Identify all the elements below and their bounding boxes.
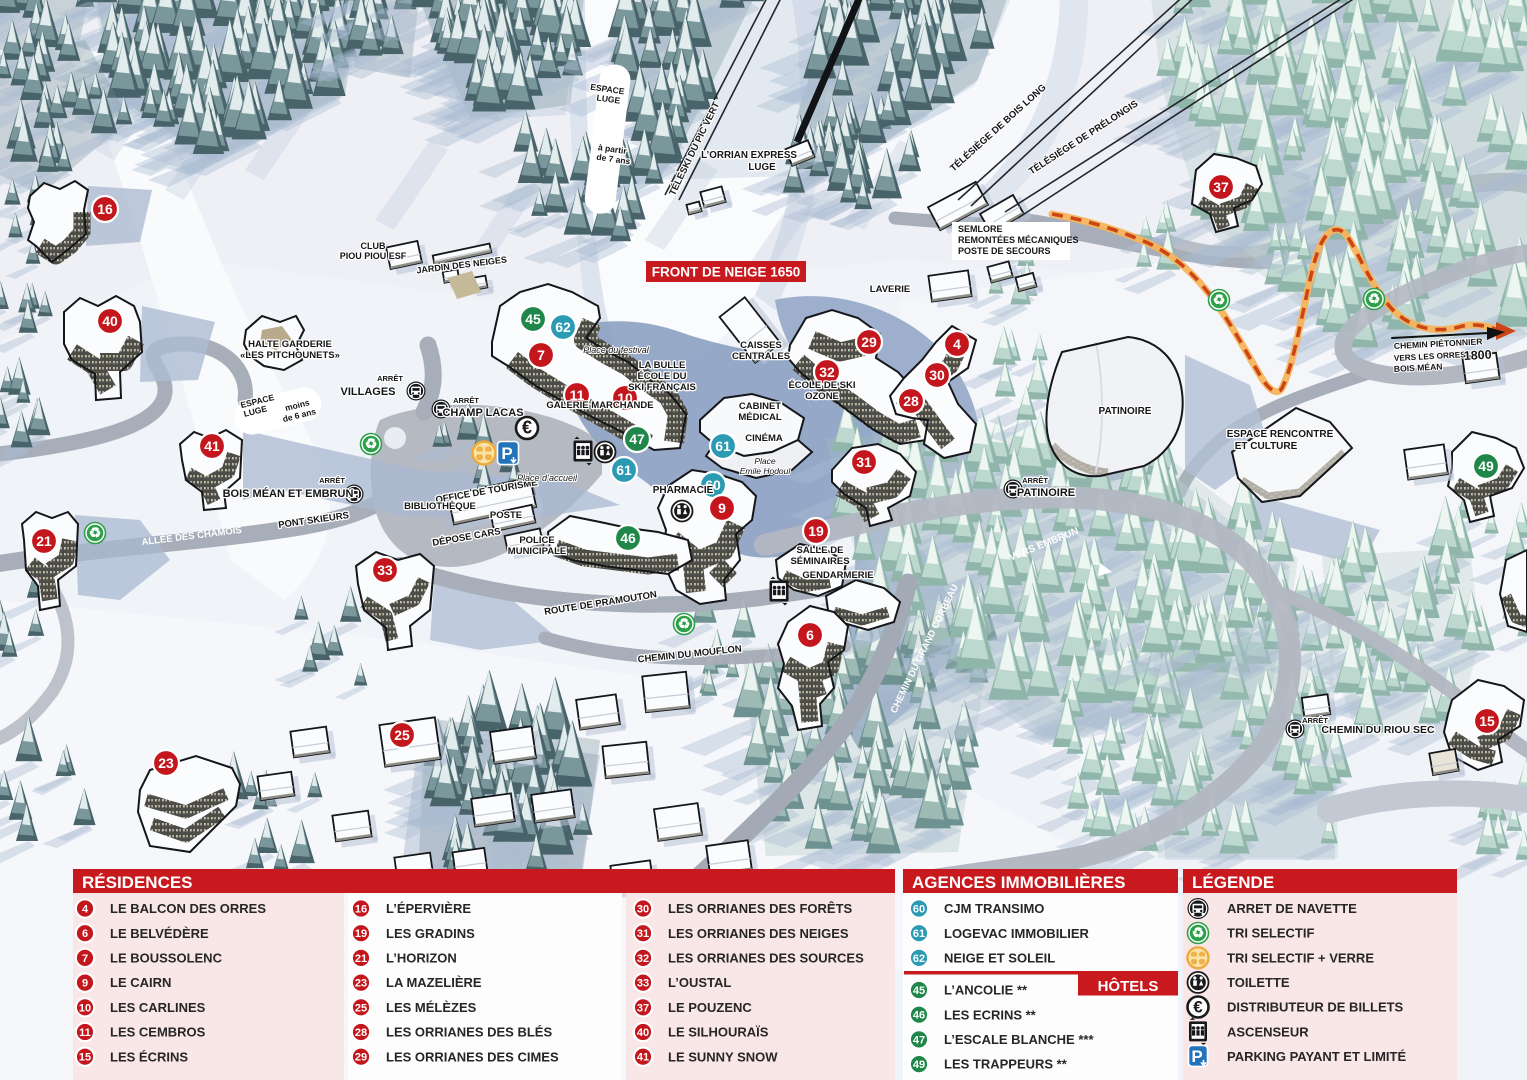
svg-text:POSTE DE SECOURS: POSTE DE SECOURS [958, 246, 1051, 256]
svg-text:9: 9 [718, 500, 726, 516]
svg-text:L’ANCOLIE **: L’ANCOLIE ** [944, 983, 1028, 998]
svg-text:MUNICIPALE: MUNICIPALE [508, 546, 566, 557]
svg-text:19: 19 [355, 928, 367, 940]
svg-text:LES CARLINES: LES CARLINES [110, 1000, 206, 1015]
svg-text:Place: Place [754, 456, 776, 466]
svg-text:30: 30 [637, 904, 649, 916]
svg-text:62: 62 [555, 319, 571, 335]
svg-text:ESPACE RENCONTRE: ESPACE RENCONTRE [1227, 429, 1334, 440]
svg-text:23: 23 [355, 978, 367, 990]
svg-text:«LES PITCHOUNETS»: «LES PITCHOUNETS» [240, 350, 340, 361]
svg-text:MÉDICAL: MÉDICAL [738, 412, 781, 423]
svg-text:CJM TRANSIMO: CJM TRANSIMO [944, 901, 1044, 916]
svg-text:LA MAZELIÈRE: LA MAZELIÈRE [386, 975, 482, 990]
svg-text:LES TRAPPEURS **: LES TRAPPEURS ** [944, 1057, 1068, 1072]
svg-text:POLICE: POLICE [519, 535, 554, 546]
svg-text:TRI SELECTIF: TRI SELECTIF [1227, 926, 1314, 941]
svg-text:GENDARMERIE: GENDARMERIE [802, 570, 873, 581]
svg-text:ET CULTURE: ET CULTURE [1235, 441, 1298, 452]
svg-text:21: 21 [36, 533, 52, 549]
svg-text:46: 46 [620, 530, 636, 546]
svg-text:ARRÊT: ARRÊT [377, 374, 403, 383]
svg-text:LES ÉCRINS: LES ÉCRINS [110, 1049, 188, 1064]
svg-text:LES ORRIANES DES FORÊTS: LES ORRIANES DES FORÊTS [668, 901, 853, 916]
svg-text:41: 41 [204, 438, 220, 454]
svg-text:L’HORIZON: L’HORIZON [386, 951, 457, 966]
svg-text:CHEMIN DU RIOU SEC: CHEMIN DU RIOU SEC [1321, 724, 1435, 736]
svg-text:TOILETTE: TOILETTE [1227, 975, 1290, 990]
svg-text:33: 33 [377, 562, 393, 578]
svg-text:7: 7 [82, 953, 88, 965]
svg-text:23: 23 [158, 755, 174, 771]
svg-text:41: 41 [637, 1052, 649, 1064]
svg-text:SÉMINAIRES: SÉMINAIRES [790, 556, 849, 567]
svg-text:BIBLIOTHÈQUE: BIBLIOTHÈQUE [404, 501, 476, 512]
svg-text:25: 25 [355, 1002, 367, 1014]
svg-text:CHAMP LACAS: CHAMP LACAS [442, 407, 523, 419]
svg-text:49: 49 [1478, 458, 1494, 474]
svg-text:Place d’accueil: Place d’accueil [517, 473, 578, 483]
svg-text:VILLAGES: VILLAGES [340, 386, 395, 398]
svg-text:6: 6 [806, 627, 814, 643]
svg-text:SALLE DE: SALLE DE [797, 545, 844, 556]
svg-text:32: 32 [637, 953, 649, 965]
svg-text:60: 60 [913, 904, 925, 916]
svg-text:LÉGENDE: LÉGENDE [1192, 873, 1274, 892]
svg-text:33: 33 [637, 978, 649, 990]
svg-text:49: 49 [913, 1059, 925, 1071]
svg-text:AGENCES IMMOBILIÈRES: AGENCES IMMOBILIÈRES [912, 873, 1125, 892]
svg-text:10: 10 [79, 1002, 91, 1014]
svg-text:HÔTELS: HÔTELS [1098, 977, 1159, 995]
svg-text:40: 40 [102, 313, 118, 329]
svg-text:LES CEMBROS: LES CEMBROS [110, 1025, 206, 1040]
svg-text:GALERIE MARCHANDE: GALERIE MARCHANDE [546, 400, 653, 411]
svg-text:PHARMACIE: PHARMACIE [653, 485, 714, 496]
svg-text:POSTE: POSTE [490, 510, 522, 521]
svg-text:LOGEVAC IMMOBILIER: LOGEVAC IMMOBILIER [944, 926, 1090, 941]
svg-text:LUGE: LUGE [748, 162, 776, 173]
svg-text:61: 61 [913, 928, 925, 940]
svg-text:REMONTÉES MÉCANIQUES: REMONTÉES MÉCANIQUES [958, 235, 1079, 245]
svg-text:4: 4 [82, 904, 89, 916]
svg-text:32: 32 [819, 364, 835, 380]
svg-text:25: 25 [394, 727, 410, 743]
svg-text:♻: ♻ [1192, 925, 1205, 941]
svg-text:LES MÉLÈZES: LES MÉLÈZES [386, 1000, 477, 1015]
svg-text:62: 62 [913, 953, 925, 965]
svg-text:LE CAIRN: LE CAIRN [110, 975, 171, 990]
svg-text:47: 47 [913, 1034, 925, 1046]
svg-text:FRONT DE NEIGE 1650: FRONT DE NEIGE 1650 [652, 265, 801, 280]
svg-text:40: 40 [637, 1027, 649, 1039]
svg-text:29: 29 [355, 1052, 367, 1064]
svg-text:46: 46 [913, 1010, 925, 1022]
svg-text:31: 31 [856, 454, 872, 470]
svg-text:9: 9 [82, 978, 88, 990]
svg-text:61: 61 [616, 462, 632, 478]
svg-text:61: 61 [715, 438, 731, 454]
svg-text:PIOU PIOU ESF: PIOU PIOU ESF [340, 251, 407, 261]
svg-text:ARRET DE NAVETTE: ARRET DE NAVETTE [1227, 901, 1357, 916]
svg-text:€: € [522, 418, 532, 438]
svg-text:45: 45 [525, 311, 541, 327]
svg-text:21: 21 [355, 953, 367, 965]
svg-text:LE BOUSSOLENC: LE BOUSSOLENC [110, 951, 223, 966]
svg-text:16: 16 [355, 904, 367, 916]
svg-text:L’ESCALE BLANCHE ***: L’ESCALE BLANCHE *** [944, 1032, 1094, 1047]
svg-text:CINÉMA: CINÉMA [745, 433, 783, 444]
svg-text:LES GRADINS: LES GRADINS [386, 926, 475, 941]
svg-text:♻: ♻ [365, 436, 378, 452]
svg-text:NEIGE ET SOLEIL: NEIGE ET SOLEIL [944, 951, 1055, 966]
svg-text:LES ORRIANES DES SOURCES: LES ORRIANES DES SOURCES [668, 951, 864, 966]
svg-text:1800: 1800 [1463, 348, 1492, 363]
svg-text:28: 28 [903, 393, 919, 409]
svg-text:28: 28 [355, 1027, 367, 1039]
svg-text:CAISSES: CAISSES [740, 340, 782, 351]
svg-text:6: 6 [82, 928, 88, 940]
svg-text:€: € [1193, 998, 1203, 1017]
svg-text:CABINET: CABINET [739, 401, 781, 412]
svg-text:HALTE GARDERIE: HALTE GARDERIE [248, 339, 332, 350]
svg-text:4: 4 [953, 336, 961, 352]
svg-text:♻: ♻ [89, 525, 102, 541]
svg-text:LE SILHOURAÏS: LE SILHOURAÏS [668, 1025, 769, 1040]
svg-text:L’ÉPERVIÈRE: L’ÉPERVIÈRE [386, 901, 471, 916]
svg-text:19: 19 [808, 523, 824, 539]
svg-text:31: 31 [637, 928, 649, 940]
svg-text:Place du festival: Place du festival [583, 345, 650, 355]
svg-text:LAVERIE: LAVERIE [870, 284, 910, 295]
svg-text:29: 29 [861, 334, 877, 350]
svg-text:LE BELVÉDÈRE: LE BELVÉDÈRE [110, 926, 209, 941]
svg-text:LES ORRIANES DES CIMES: LES ORRIANES DES CIMES [386, 1049, 559, 1064]
svg-text:37: 37 [637, 1002, 649, 1014]
svg-text:LE POUZENC: LE POUZENC [668, 1000, 752, 1015]
svg-text:7: 7 [537, 347, 545, 363]
svg-text:11: 11 [79, 1027, 91, 1039]
svg-text:RÉSIDENCES: RÉSIDENCES [82, 873, 193, 892]
svg-text:L’ORRIAN EXPRESS: L’ORRIAN EXPRESS [701, 150, 797, 161]
svg-text:Emile Hodoul: Emile Hodoul [740, 466, 792, 476]
svg-text:LES ORRIANES DES BLÉS: LES ORRIANES DES BLÉS [386, 1025, 552, 1040]
svg-text:♻: ♻ [1368, 291, 1381, 307]
svg-text:15: 15 [79, 1052, 91, 1064]
svg-text:37: 37 [1213, 179, 1229, 195]
svg-text:L’OUSTAL: L’OUSTAL [668, 975, 731, 990]
svg-text:PARKING PAYANT ET LIMITÉ: PARKING PAYANT ET LIMITÉ [1227, 1049, 1406, 1064]
svg-text:BOIS MÉAN ET EMBRUN: BOIS MÉAN ET EMBRUN [223, 487, 354, 500]
svg-text:47: 47 [629, 431, 645, 447]
svg-text:LE BALCON DES ORRES: LE BALCON DES ORRES [110, 901, 266, 916]
svg-text:♻: ♻ [1213, 292, 1226, 308]
svg-text:SKI FRANÇAIS: SKI FRANÇAIS [628, 382, 696, 393]
svg-text:TRI SELECTIF + VERRE: TRI SELECTIF + VERRE [1227, 950, 1374, 965]
svg-text:ÉCOLE DE SKI: ÉCOLE DE SKI [788, 380, 855, 391]
svg-text:ARRÊT: ARRÊT [1022, 476, 1048, 485]
svg-text:15: 15 [1479, 713, 1495, 729]
svg-text:SEMLORE: SEMLORE [958, 224, 1003, 234]
svg-text:CENTRALES: CENTRALES [732, 351, 790, 362]
svg-text:30: 30 [929, 367, 945, 383]
svg-text:ARRÊT: ARRÊT [319, 476, 345, 485]
svg-text:PATINOIRE: PATINOIRE [1099, 406, 1152, 417]
svg-text:♻: ♻ [678, 616, 691, 632]
svg-text:ASCENSEUR: ASCENSEUR [1227, 1024, 1309, 1039]
svg-text:PATINOIRE: PATINOIRE [1017, 487, 1075, 499]
svg-text:CLUB: CLUB [361, 241, 386, 251]
svg-text:LA BULLE: LA BULLE [639, 360, 686, 371]
svg-text:LES ORRIANES DES NEIGES: LES ORRIANES DES NEIGES [668, 926, 849, 941]
svg-text:DISTRIBUTEUR DE BILLETS: DISTRIBUTEUR DE BILLETS [1227, 1000, 1404, 1015]
svg-text:45: 45 [913, 985, 925, 997]
svg-text:OZONE: OZONE [805, 391, 839, 402]
svg-text:LES ECRINS **: LES ECRINS ** [944, 1007, 1037, 1022]
svg-text:LE SUNNY SNOW: LE SUNNY SNOW [668, 1049, 778, 1064]
svg-text:ARRÊT: ARRÊT [453, 396, 479, 405]
svg-text:ÉCOLE DU: ÉCOLE DU [637, 371, 686, 382]
svg-text:16: 16 [97, 201, 113, 217]
